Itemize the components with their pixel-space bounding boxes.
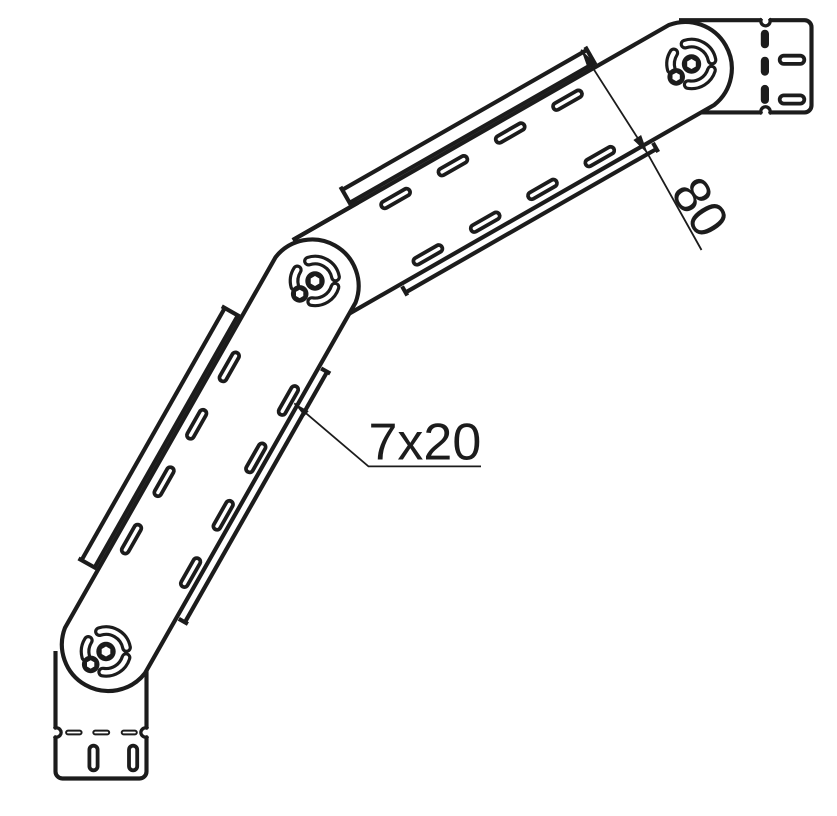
svg-text:7x20: 7x20 [369,413,482,471]
